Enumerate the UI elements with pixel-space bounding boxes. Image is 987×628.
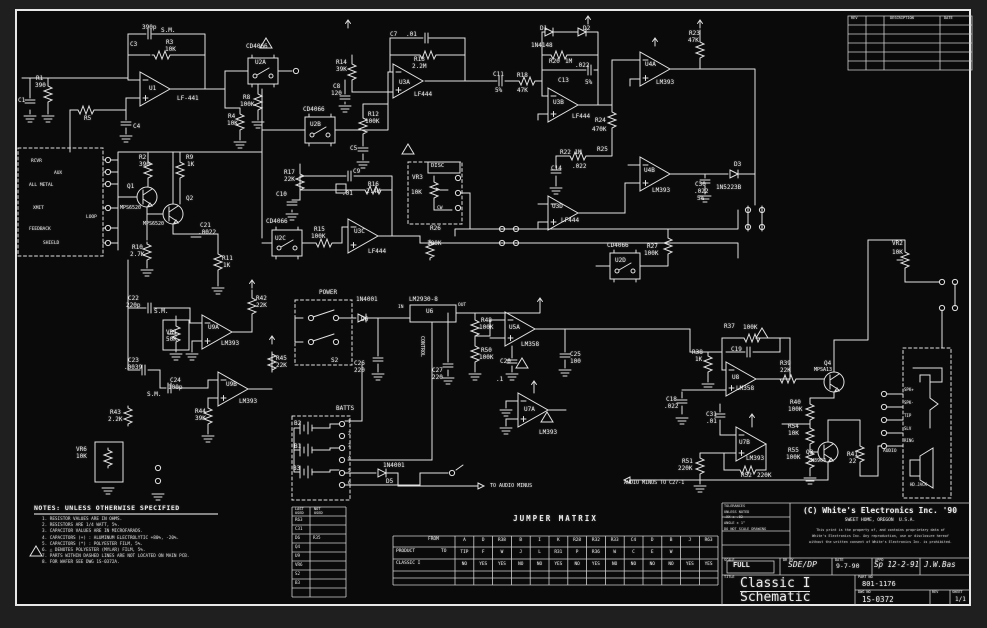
label: B <box>662 538 681 548</box>
approval-signature-1: Sp 12-2-91 <box>874 561 919 569</box>
label: R31 <box>549 550 568 560</box>
label: W <box>662 550 681 560</box>
label <box>313 580 329 589</box>
label: I <box>530 538 549 548</box>
label: C31 <box>295 526 311 535</box>
label: NO <box>568 562 587 572</box>
label: R32 <box>587 538 606 548</box>
label: NO <box>455 562 474 572</box>
label: R28 <box>568 538 587 548</box>
label <box>699 550 718 560</box>
label <box>680 550 699 560</box>
label: W <box>493 550 512 560</box>
label: NO <box>662 562 681 572</box>
label: 6. △ DENOTES POLYESTER (MYLAR) FILM, 5%. <box>42 549 282 553</box>
notes-list: 1. RESISTOR VALUES ARE IN OHMS.2. RESIST… <box>42 518 282 568</box>
label: .XX ± .02 <box>724 516 788 520</box>
legal-line-2: White's Electronics Inc. Any reproductio… <box>793 535 968 538</box>
label: B <box>511 538 530 548</box>
label: F <box>474 550 493 560</box>
label: D <box>474 538 493 548</box>
label: YES <box>474 562 493 572</box>
label: NO <box>643 562 662 572</box>
label: B3 <box>295 580 311 589</box>
label <box>313 571 329 580</box>
label: K <box>549 538 568 548</box>
notes-heading: NOTES: UNLESS OTHERWISE SPECIFIED <box>34 505 180 512</box>
label: NO <box>605 562 624 572</box>
label: YES <box>493 562 512 572</box>
label: W <box>605 550 624 560</box>
label: D6 <box>295 535 311 544</box>
label: 7. PARTS WITHIN DASHED LINES ARE NOT LOC… <box>42 555 282 559</box>
legal-line-1: This print is the property of, and conta… <box>793 529 968 532</box>
part-number: 801-1176 <box>862 581 896 588</box>
label: 2. RESISTORS ARE 1/4 WATT, 5%. <box>42 524 282 528</box>
label: C4 <box>624 538 643 548</box>
jumper-matrix-from-row: ADR38BIKR28R32R33C4DBJR63 <box>455 538 718 548</box>
label: VR6 <box>295 562 311 571</box>
label: YES <box>699 562 718 572</box>
label: 3. CAPACITOR VALUES ARE IN MICROFARADS. <box>42 530 282 534</box>
jumper-matrix-classic-row: NOYESYESNONOYESNOYESNONONONOYESYES <box>455 562 718 572</box>
label: R33 <box>605 538 624 548</box>
label: NO <box>530 562 549 572</box>
label: D <box>643 538 662 548</box>
drawn-by: SDE/DP <box>788 561 817 569</box>
label: R63 <box>295 517 311 526</box>
drawing-title-line-2: Schematic <box>740 591 810 606</box>
label: R36 <box>587 550 606 560</box>
label: YES <box>549 562 568 572</box>
label: J <box>511 550 530 560</box>
label: U9 <box>295 553 311 562</box>
label <box>313 544 329 553</box>
legal-line-3: without the written consent of White's E… <box>793 541 968 544</box>
date: 9-7-90 <box>836 563 859 570</box>
label: YES <box>680 562 699 572</box>
tolerance-notes: TOLERANCESUNLESS NOTED.XX ± .02ANGLE ± 1… <box>724 505 788 533</box>
label: 4. CAPACITORS (+) : ALUMINUM ELECTROLYTI… <box>42 537 282 541</box>
drawing-number: 1S-0372 <box>862 596 894 604</box>
copyright: (C) White's Electronics Inc. '90 <box>792 507 968 515</box>
label <box>313 553 329 562</box>
label: J <box>680 538 699 548</box>
schematic-sheet: 390pS.M.C3R310KU1LF-441R1390C1R5C4RCVRAU… <box>0 0 987 628</box>
label: L <box>530 550 549 560</box>
last-used-left-column: R63C31D6Q4U9VR6S2B3 <box>295 517 311 589</box>
label: R38 <box>493 538 512 548</box>
label: TIP <box>455 550 474 560</box>
jumper-matrix-to-row: TIPFWJLR31PR36WCEW <box>455 550 718 560</box>
label: 8. FOR WAFER SEE DWG 1S-0372A. <box>42 561 282 565</box>
label: NO <box>624 562 643 572</box>
label: YES <box>587 562 606 572</box>
scale-value: FULL <box>733 562 750 569</box>
label <box>313 562 329 571</box>
address: SWEET HOME, OREGON U.S.A. <box>792 519 968 524</box>
label: C <box>624 550 643 560</box>
label: R35 <box>313 535 329 544</box>
jumper-matrix-title: JUMPER MATRIX <box>393 515 718 523</box>
label: NO <box>511 562 530 572</box>
label <box>313 526 329 535</box>
label: R63 <box>699 538 718 548</box>
label <box>313 517 329 526</box>
label: E <box>643 550 662 560</box>
label: ANGLE ± 1° <box>724 522 788 526</box>
label: S2 <box>295 571 311 580</box>
label: Q4 <box>295 544 311 553</box>
label: TOLERANCES <box>724 505 788 509</box>
label: UNLESS NOTED <box>724 511 788 515</box>
approval-signature-2: J.W.Bas <box>924 561 956 569</box>
label: P <box>568 550 587 560</box>
label: 5. CAPACITORS (*) : POLYESTER FILM, 5%. <box>42 543 282 547</box>
label: A <box>455 538 474 548</box>
sheet-number: 1/1 <box>955 597 966 603</box>
label: 1. RESISTOR VALUES ARE IN OHMS. <box>42 518 282 522</box>
last-used-right-column: R35 <box>313 517 329 589</box>
label: DO NOT SCALE DRAWING <box>724 528 788 532</box>
